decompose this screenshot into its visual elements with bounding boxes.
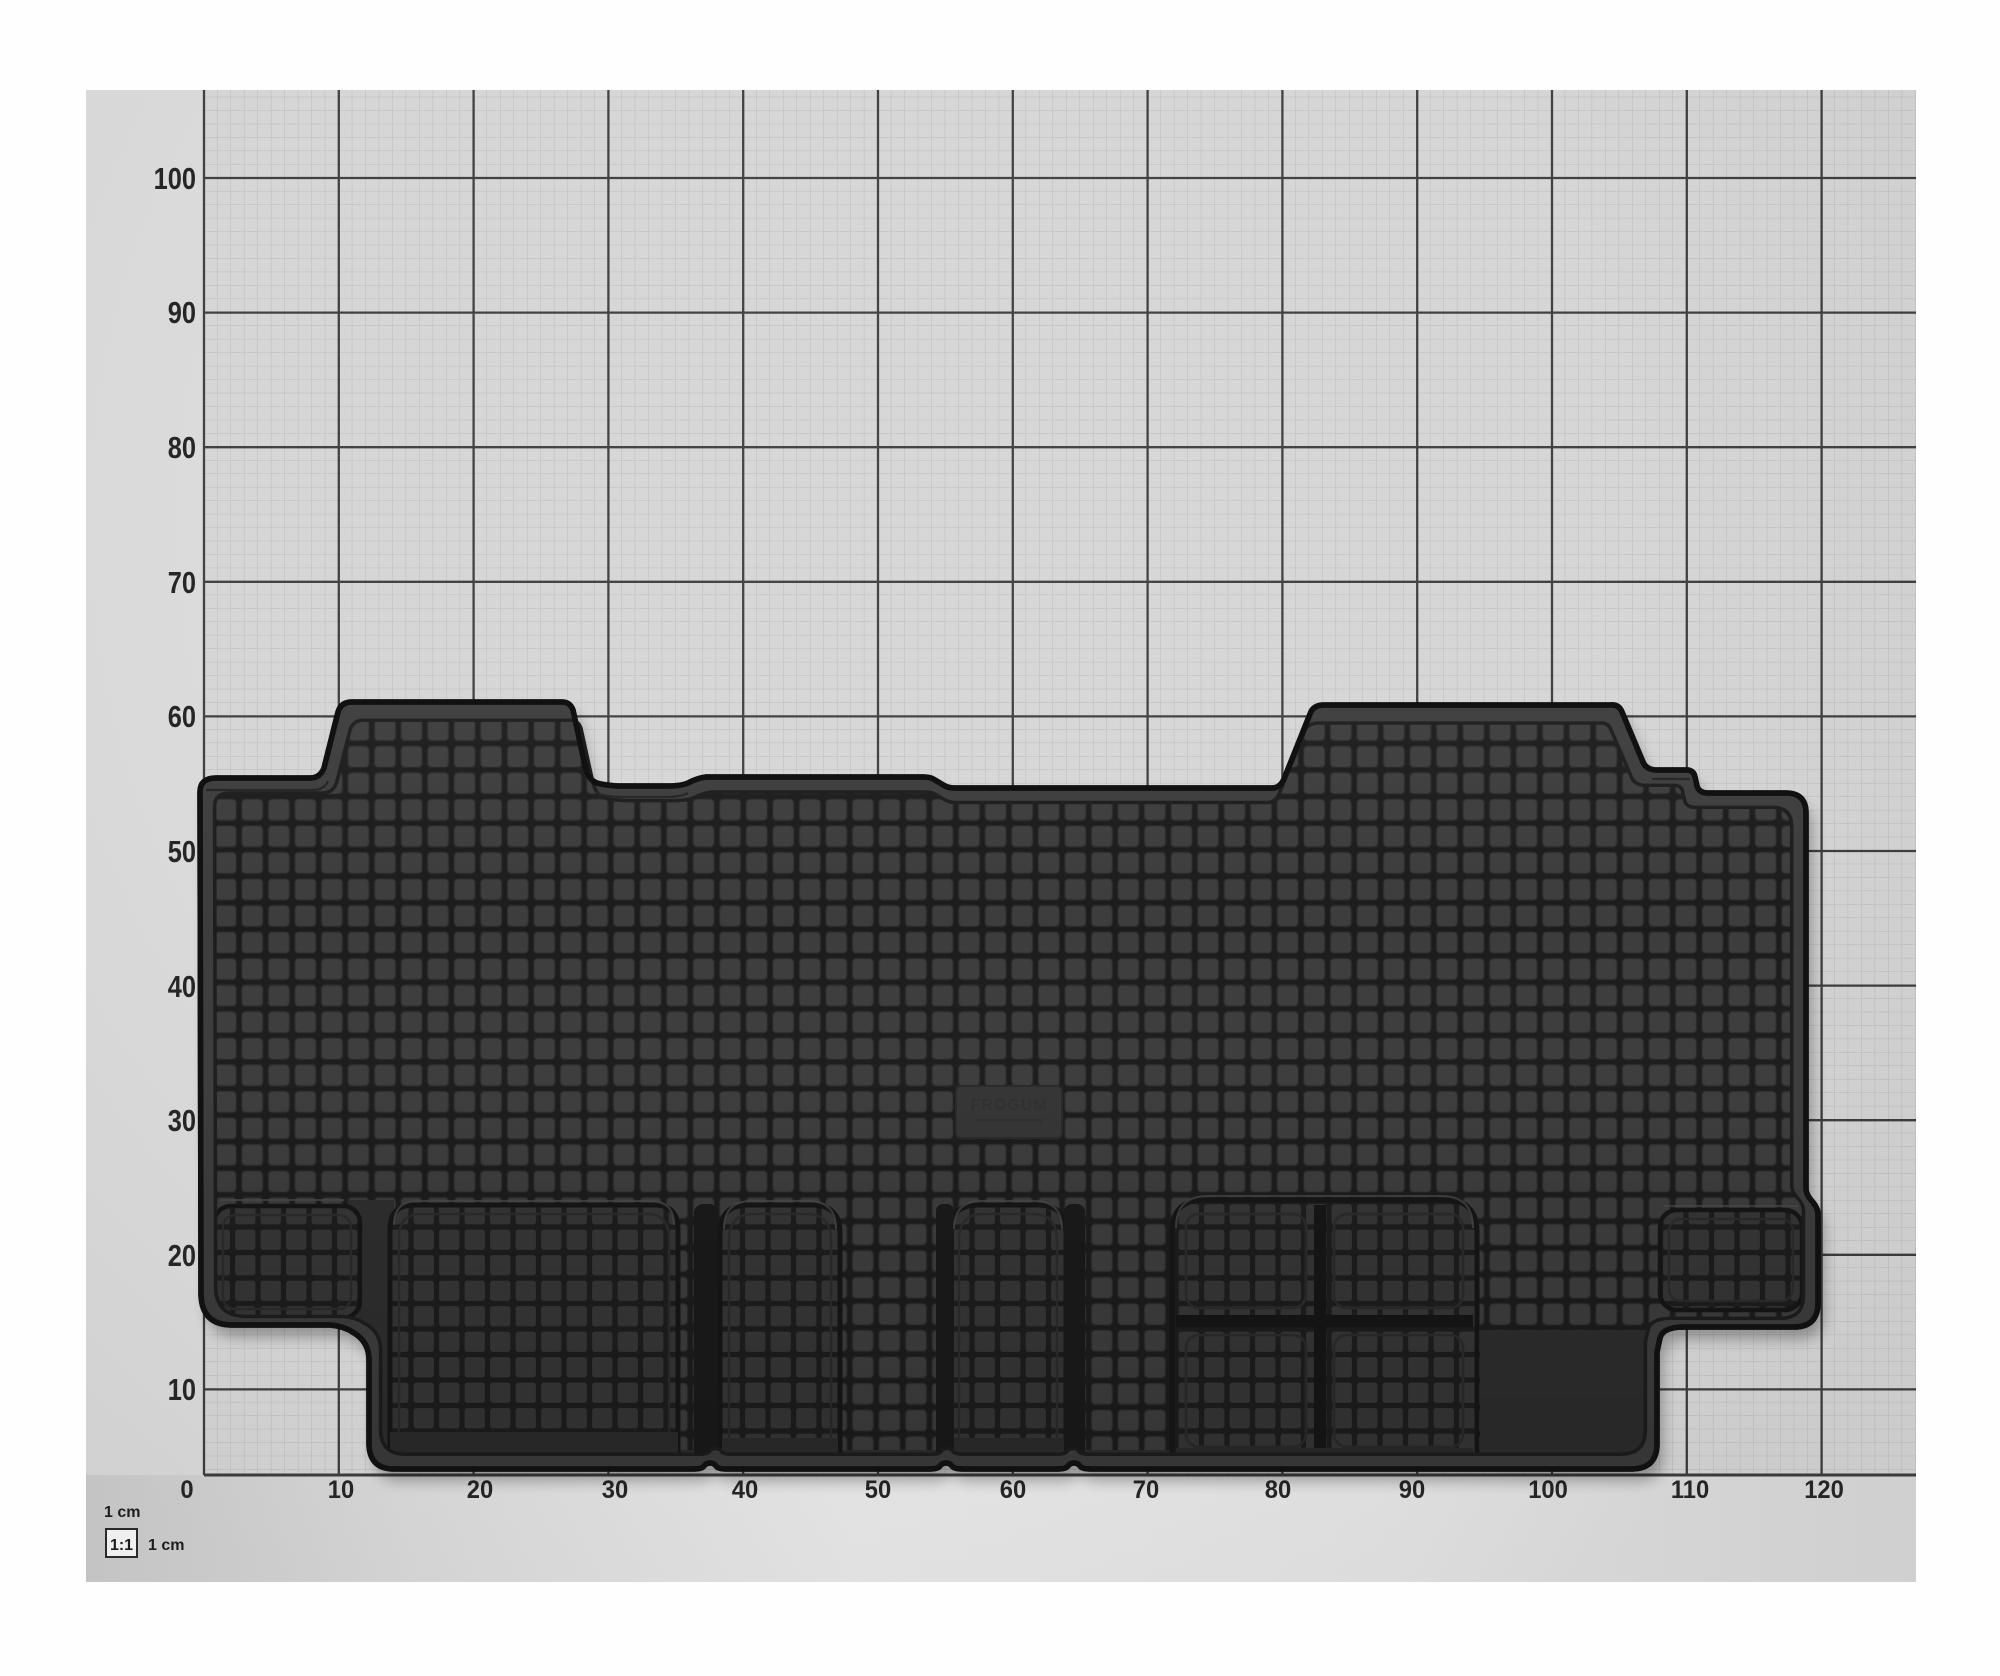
svg-text:90: 90	[168, 296, 196, 331]
svg-text:80: 80	[168, 431, 196, 466]
svg-text:60: 60	[168, 700, 196, 735]
svg-text:1 cm: 1 cm	[104, 1504, 140, 1521]
svg-text:1:1: 1:1	[110, 1537, 133, 1554]
svg-text:70: 70	[168, 566, 196, 601]
svg-text:30: 30	[168, 1104, 196, 1139]
svg-text:110: 110	[1671, 1476, 1709, 1504]
svg-text:0: 0	[180, 1476, 193, 1504]
svg-text:10: 10	[168, 1373, 196, 1408]
svg-text:100: 100	[154, 162, 196, 197]
svg-text:50: 50	[168, 835, 196, 870]
svg-text:10: 10	[328, 1476, 354, 1504]
svg-text:40: 40	[168, 970, 196, 1005]
svg-text:1 cm: 1 cm	[148, 1537, 184, 1554]
svg-text:20: 20	[168, 1239, 196, 1274]
svg-text:120: 120	[1804, 1476, 1844, 1504]
